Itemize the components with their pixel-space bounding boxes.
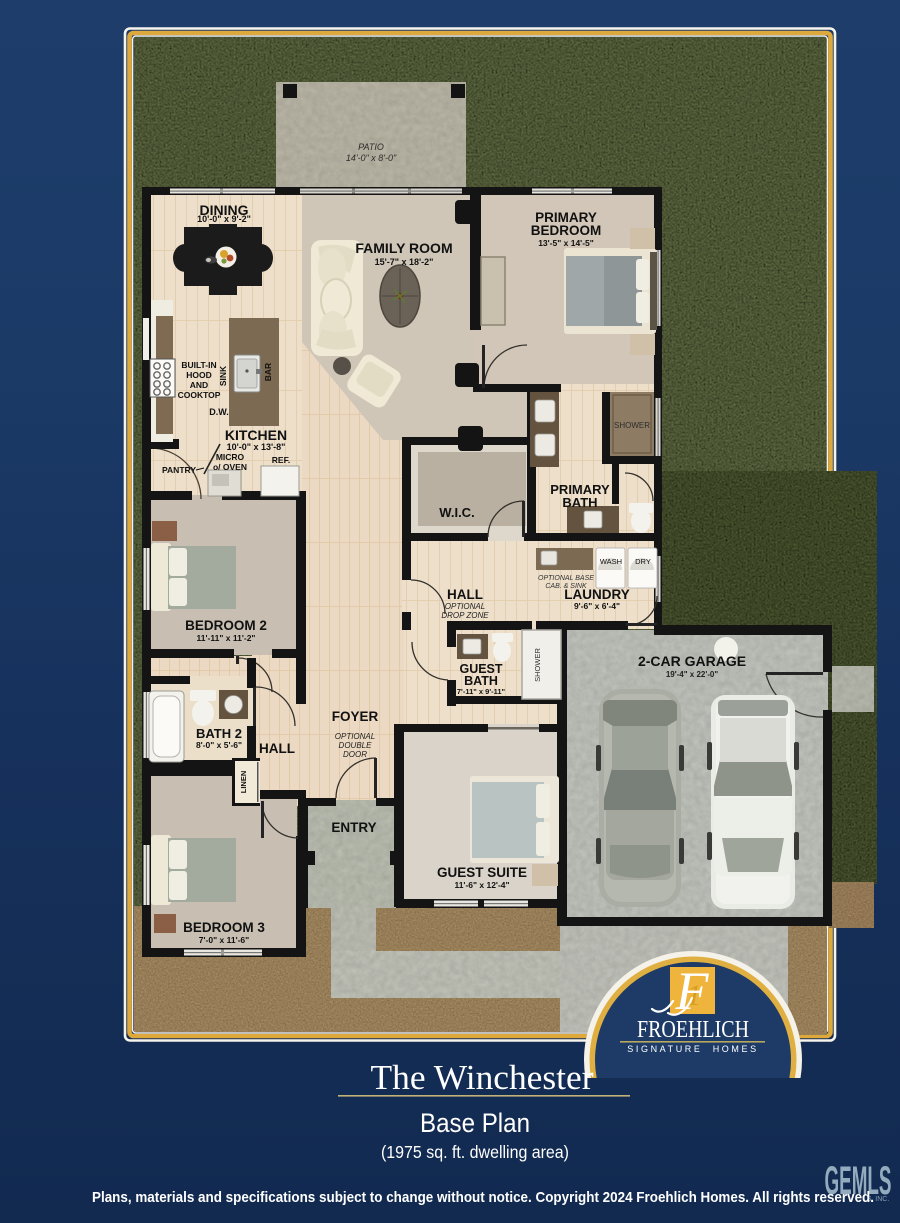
svg-text:AND: AND bbox=[190, 380, 208, 390]
svg-text:BEDROOM 3: BEDROOM 3 bbox=[183, 920, 265, 935]
svg-text:SINK: SINK bbox=[218, 365, 228, 386]
svg-text:BEDROOM: BEDROOM bbox=[531, 223, 602, 238]
svg-text:LINEN: LINEN bbox=[239, 771, 248, 794]
svg-text:7'-0" x 11'-6": 7'-0" x 11'-6" bbox=[199, 935, 249, 945]
svg-text:8'-0" x 5'-6": 8'-0" x 5'-6" bbox=[196, 740, 242, 750]
svg-text:The Winchester: The Winchester bbox=[371, 1058, 594, 1097]
svg-text:KITCHEN: KITCHEN bbox=[225, 427, 287, 443]
svg-text:Plans, materials and specifica: Plans, materials and specifications subj… bbox=[92, 1189, 874, 1206]
svg-text:PATIO: PATIO bbox=[358, 142, 384, 152]
svg-text:14'-0" x 8'-0": 14'-0" x 8'-0" bbox=[346, 153, 397, 163]
svg-text:DROP ZONE: DROP ZONE bbox=[441, 611, 489, 620]
svg-text:D.W.: D.W. bbox=[209, 407, 229, 417]
svg-text:GUEST SUITE: GUEST SUITE bbox=[437, 865, 527, 880]
svg-text:HALL: HALL bbox=[447, 587, 483, 602]
svg-text:BATH 2: BATH 2 bbox=[196, 726, 242, 741]
svg-text:LAUNDRY: LAUNDRY bbox=[564, 587, 630, 602]
svg-text:WASH: WASH bbox=[600, 557, 622, 566]
svg-text:7'-11" x 9'-11": 7'-11" x 9'-11" bbox=[457, 687, 506, 696]
svg-text:FAMILY ROOM: FAMILY ROOM bbox=[355, 240, 452, 256]
svg-text:DOUBLE: DOUBLE bbox=[339, 741, 373, 750]
svg-text:BUILT-IN: BUILT-IN bbox=[181, 360, 216, 370]
svg-text:HALL: HALL bbox=[259, 741, 295, 756]
svg-text:11'-6" x 12'-4": 11'-6" x 12'-4" bbox=[454, 880, 509, 890]
svg-text:SHOWER: SHOWER bbox=[614, 421, 650, 430]
svg-text:11'-11" x 11'-2": 11'-11" x 11'-2" bbox=[197, 633, 256, 643]
svg-text:13'-5" x 14'-5": 13'-5" x 14'-5" bbox=[538, 238, 594, 248]
svg-text:PANTRY: PANTRY bbox=[162, 465, 196, 475]
svg-text:Base Plan: Base Plan bbox=[420, 1108, 530, 1138]
svg-text:OPTIONAL: OPTIONAL bbox=[445, 602, 485, 611]
svg-text:REF.: REF. bbox=[272, 455, 290, 465]
svg-text:o/ OVEN: o/ OVEN bbox=[213, 462, 247, 472]
svg-text:SHOWER: SHOWER bbox=[533, 648, 542, 682]
svg-text:10'-0" x 13'-8": 10'-0" x 13'-8" bbox=[227, 442, 286, 452]
svg-text:10'-0" x 9'-2": 10'-0" x 9'-2" bbox=[197, 214, 251, 224]
svg-text:2-CAR GARAGE: 2-CAR GARAGE bbox=[638, 653, 746, 669]
svg-text:BAR: BAR bbox=[263, 363, 273, 381]
svg-text:BATH: BATH bbox=[464, 674, 498, 688]
svg-text:(1975 sq. ft. dwelling area): (1975 sq. ft. dwelling area) bbox=[381, 1142, 569, 1162]
svg-text:DOOR: DOOR bbox=[343, 750, 367, 759]
svg-text:W.I.C.: W.I.C. bbox=[439, 505, 474, 520]
svg-text:OPTIONAL: OPTIONAL bbox=[335, 732, 375, 741]
svg-text:FOYER: FOYER bbox=[332, 709, 379, 724]
svg-text:ENTRY: ENTRY bbox=[331, 820, 376, 835]
svg-text:15'-7" x 18'-2": 15'-7" x 18'-2" bbox=[375, 257, 434, 267]
svg-text:BATH: BATH bbox=[562, 495, 597, 510]
svg-text:COOKTOP: COOKTOP bbox=[178, 390, 221, 400]
svg-text:HOOD: HOOD bbox=[186, 370, 212, 380]
svg-text:19'-4" x 22'-0": 19'-4" x 22'-0" bbox=[666, 670, 719, 679]
svg-text:FROEHLICH: FROEHLICH bbox=[637, 1017, 749, 1043]
svg-text:BEDROOM 2: BEDROOM 2 bbox=[185, 618, 267, 633]
svg-text:MICRO: MICRO bbox=[216, 452, 245, 462]
svg-text:SIGNATURE HOMES: SIGNATURE HOMES bbox=[627, 1044, 758, 1054]
svg-text:DRY: DRY bbox=[635, 557, 651, 566]
svg-text:OPTIONAL BASE: OPTIONAL BASE bbox=[538, 575, 594, 582]
svg-text:9'-6" x 6'-4": 9'-6" x 6'-4" bbox=[574, 601, 620, 611]
